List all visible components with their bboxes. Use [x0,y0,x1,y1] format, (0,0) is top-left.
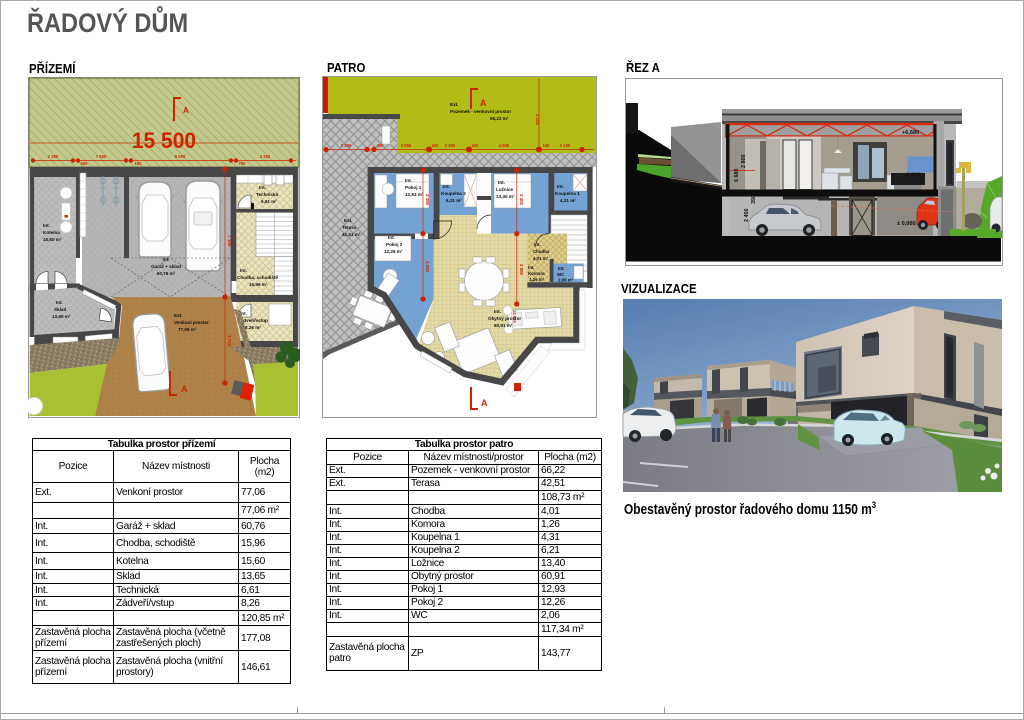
svg-text:3 710: 3 710 [227,335,232,347]
svg-text:15,96 m²: 15,96 m² [249,282,268,287]
svg-text:60,91 m²: 60,91 m² [494,323,513,328]
svg-text:Int.: Int. [443,184,450,189]
svg-text:± 0,000: ± 0,000 [897,221,916,227]
svg-text:Technická: Technická [256,192,279,197]
svg-text:3 250: 3 250 [260,154,271,159]
svg-text:15 500: 15 500 [132,127,196,153]
svg-text:4 000: 4 000 [499,143,510,148]
svg-text:2 800: 2 800 [741,155,747,169]
svg-text:Int.: Int. [43,223,50,228]
svg-text:2,06 m²: 2,06 m² [558,278,574,283]
svg-text:Int.: Int. [558,266,565,271]
svg-text:2 450: 2 450 [744,209,750,223]
svg-text:6,21 m²: 6,21 m² [446,198,462,203]
svg-text:500: 500 [81,161,89,166]
svg-text:Obytný prostor: Obytný prostor [488,316,521,321]
svg-text:WC: WC [557,272,565,277]
svg-text:Chodba, schodiště: Chodba, schodiště [237,275,279,280]
svg-text:100: 100 [543,143,551,148]
svg-text:13,40 m²: 13,40 m² [496,194,515,199]
svg-text:6 680: 6 680 [734,169,740,183]
svg-text:Garáž + sklad: Garáž + sklad [151,264,181,269]
svg-text:6 000: 6 000 [175,154,186,159]
svg-text:Int.: Int. [528,265,535,270]
svg-text:A: A [481,398,488,408]
svg-text:Ext.: Ext. [450,102,458,107]
svg-text:7 500: 7 500 [96,154,107,159]
svg-text:Int.: Int. [494,309,501,314]
svg-text:100: 100 [432,143,440,148]
svg-text:60,76 m²: 60,76 m² [157,271,176,276]
svg-text:2 250: 2 250 [445,143,456,148]
svg-text:+6,680: +6,680 [902,130,919,136]
svg-text:4,31 m²: 4,31 m² [560,198,576,203]
svg-text:Chodba: Chodba [533,249,550,254]
svg-text:+2,800: +2,800 [903,173,920,179]
svg-text:A: A [181,384,188,394]
svg-text:Koupelna 1: Koupelna 1 [555,191,580,196]
svg-text:Int.: Int. [498,180,505,185]
svg-text:Kotelna: Kotelna [43,230,60,235]
svg-text:Pokoj 2: Pokoj 2 [386,242,403,247]
svg-text:3 500: 3 500 [425,261,430,273]
svg-text:Int.: Int. [240,268,247,273]
svg-text:3 800: 3 800 [519,264,524,276]
svg-text:Int.: Int. [56,300,63,305]
svg-text:5 125: 5 125 [535,114,540,126]
svg-text:6,61 m²: 6,61 m² [261,199,277,204]
svg-text:2 250: 2 250 [341,143,352,148]
svg-text:Int.: Int. [259,185,266,190]
svg-text:A: A [480,98,487,108]
svg-text:Pozemek - venkovní prostor: Pozemek - venkovní prostor [450,109,511,114]
svg-text:7 100: 7 100 [227,235,232,247]
svg-text:13,65 m²: 13,65 m² [52,314,71,319]
svg-text:Int.: Int. [388,235,395,240]
svg-text:Ext.: Ext. [174,313,182,318]
svg-text:Komora: Komora [528,271,545,276]
svg-text:750: 750 [239,161,247,166]
svg-text:Int.: Int. [405,178,412,183]
svg-text:12,93 m²: 12,93 m² [405,192,424,197]
svg-text:4,01 m²: 4,01 m² [533,256,549,261]
svg-text:Sklad: Sklad [54,307,66,312]
svg-text:Pokoj 1: Pokoj 1 [405,185,422,190]
svg-text:Ext.: Ext. [344,218,352,223]
svg-text:2 350: 2 350 [48,154,59,159]
svg-text:15,60 m²: 15,60 m² [43,237,62,242]
svg-text:Koupelna 2: Koupelna 2 [441,191,466,196]
svg-text:8,26 m²: 8,26 m² [245,325,261,330]
svg-text:100: 100 [472,143,480,148]
svg-text:Ložnice: Ložnice [496,187,514,192]
svg-text:77,06 m²: 77,06 m² [178,327,197,332]
svg-text:3 300: 3 300 [425,194,430,206]
svg-text:3 300: 3 300 [519,194,524,206]
svg-text:350: 350 [751,195,757,204]
svg-text:12,26 m²: 12,26 m² [384,249,403,254]
svg-text:Venkoní prostor: Venkoní prostor [174,320,209,325]
svg-text:Int.: Int. [557,184,564,189]
svg-text:42,51 m²: 42,51 m² [342,232,361,237]
svg-text:66,22 m²: 66,22 m² [490,116,509,121]
svg-text:150: 150 [135,161,143,166]
svg-text:3 550: 3 550 [401,143,412,148]
svg-text:A: A [183,106,189,115]
svg-text:Int.: Int. [534,242,541,247]
svg-text:1,26 m²: 1,26 m² [529,277,545,282]
svg-text:2 100: 2 100 [560,143,571,148]
svg-text:Terasa: Terasa [342,225,357,230]
